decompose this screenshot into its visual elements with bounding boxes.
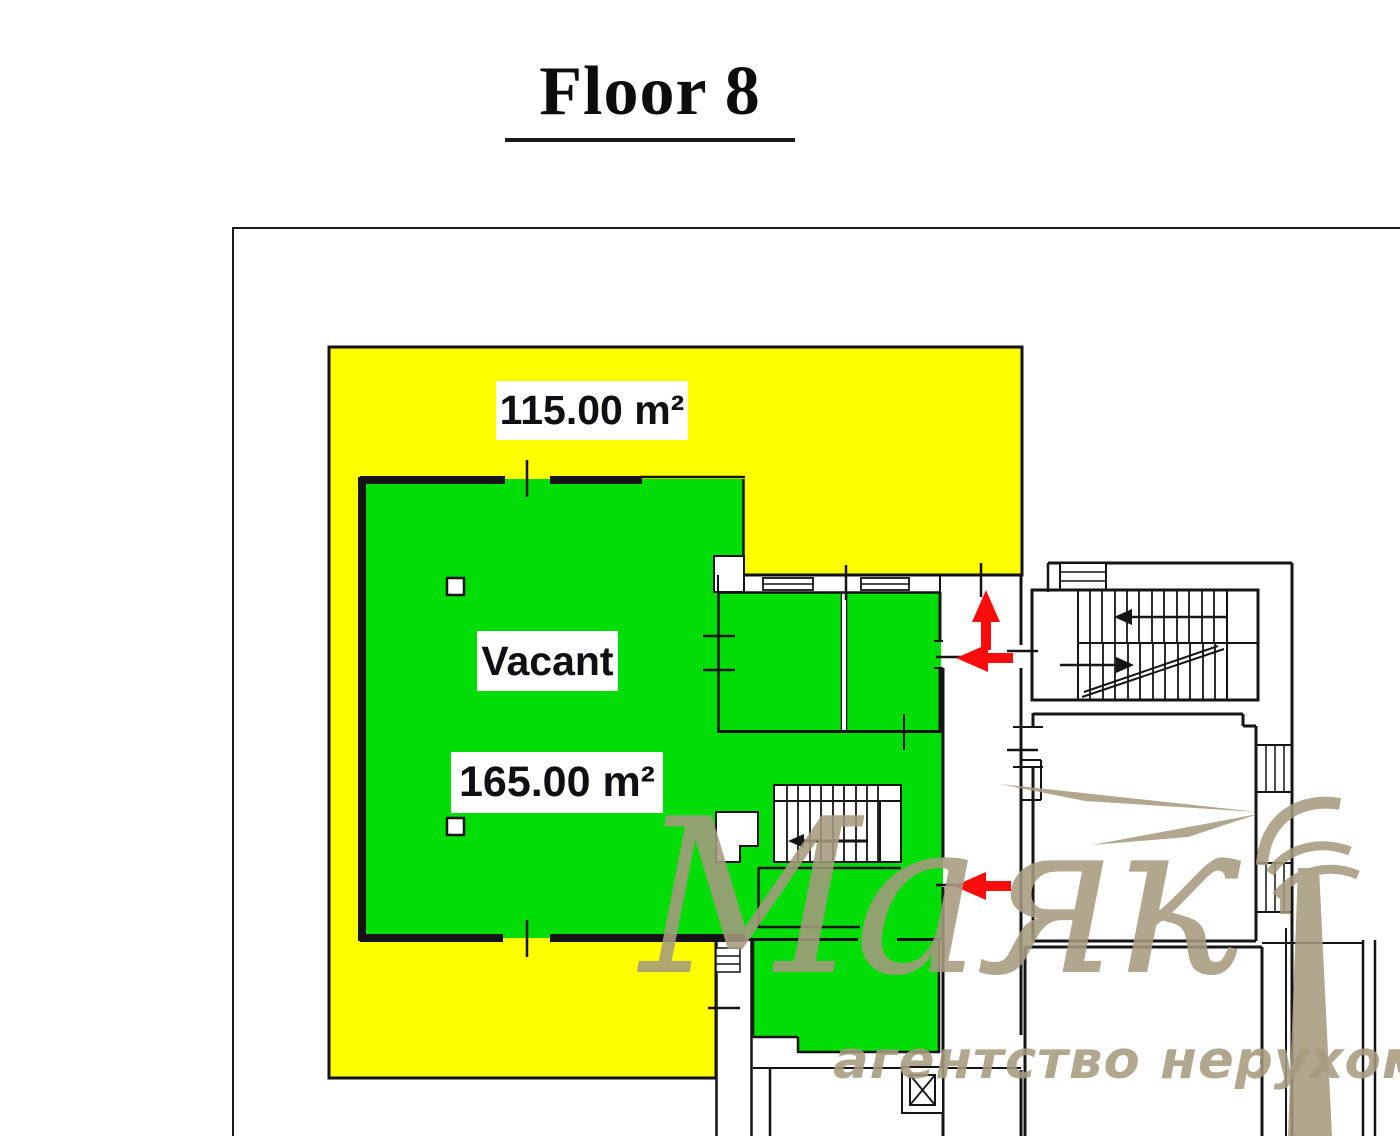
arrow-left-top-icon xyxy=(956,644,1013,672)
windows-top-strip xyxy=(718,575,940,592)
vacant-status-label: Vacant xyxy=(477,631,618,691)
right-wing-room xyxy=(1013,713,1292,941)
right-wing-bottom xyxy=(1025,940,1375,1136)
floor-plan-drawing xyxy=(0,0,1400,1136)
stair-down-arrow-icon xyxy=(1116,657,1134,673)
arrow-left-bottom-icon xyxy=(954,872,1011,900)
main-staircase xyxy=(1032,590,1258,700)
entrance-arrows xyxy=(954,590,1013,900)
stair-up-arrow-icon xyxy=(1114,609,1132,625)
green-area-label: 165.00 m² xyxy=(451,752,663,813)
elevator-symbol xyxy=(902,1067,943,1113)
page-title: Floor 8 xyxy=(505,52,795,142)
arrow-up-icon xyxy=(972,590,1000,650)
yellow-area-label: 115.00 m² xyxy=(496,381,688,440)
floor-plan-page: Маяк агентство нерухомості Floor 8 115.0… xyxy=(0,0,1400,1136)
